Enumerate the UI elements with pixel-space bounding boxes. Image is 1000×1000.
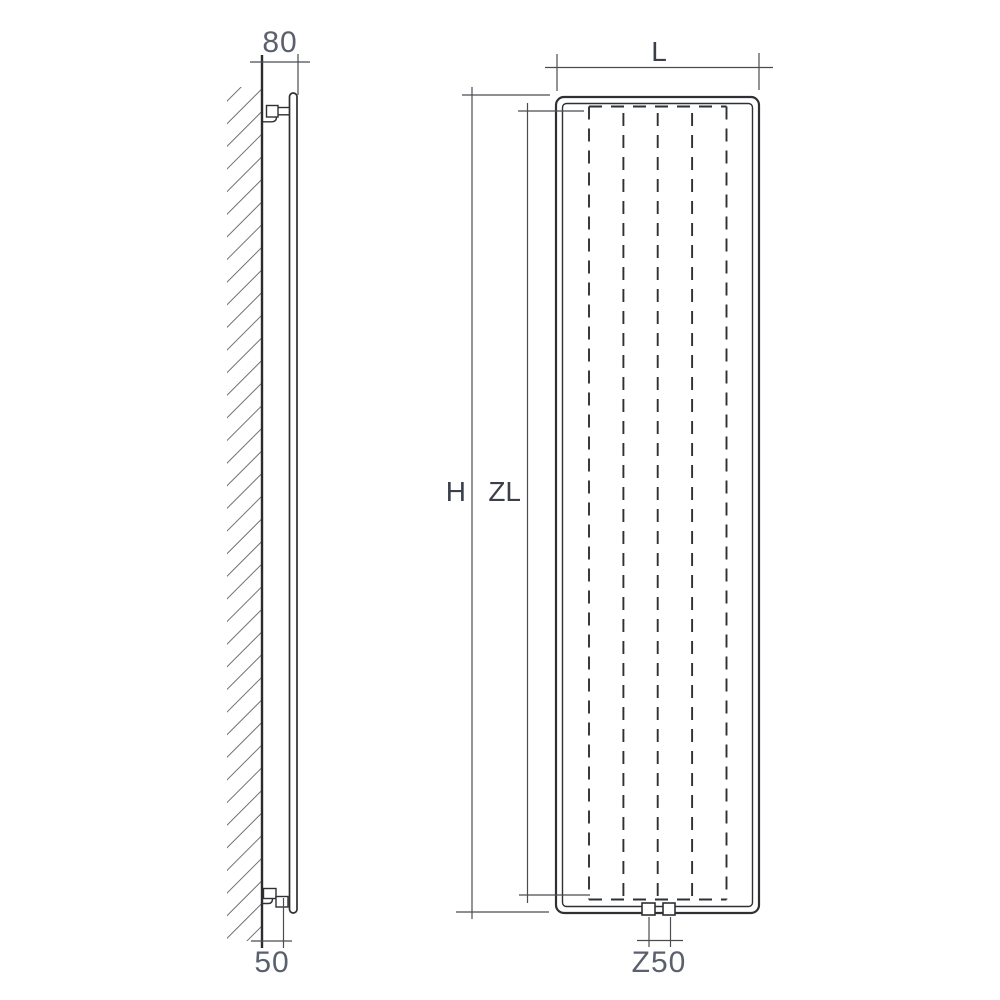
front-view [556, 97, 759, 915]
mounting-bracket-top [262, 106, 290, 122]
technical-drawing-page: 80 50 [0, 0, 1000, 1000]
height-dim-label: H [446, 476, 466, 507]
side-view [227, 55, 297, 948]
depth-dim-label: 80 [262, 26, 297, 59]
dim-depth-80: 80 [250, 26, 310, 95]
inner-height-dim-label: ZL [488, 476, 521, 507]
width-dim-label: L [651, 36, 667, 67]
radiator-dimension-drawing: 80 50 [0, 0, 1000, 1000]
connection-valve-right [663, 903, 675, 915]
connection-spacing-dim-label: Z50 [632, 946, 687, 979]
dim-connection-spacing-Z50: Z50 [632, 917, 687, 979]
radiator-body-outline [556, 97, 759, 913]
dim-width-L: L [545, 36, 773, 91]
connection-valve-left [642, 903, 655, 915]
wall-offset-dim-label: 50 [254, 946, 289, 979]
radiator-panel-profile [290, 93, 298, 913]
wall-hatching [227, 87, 262, 941]
